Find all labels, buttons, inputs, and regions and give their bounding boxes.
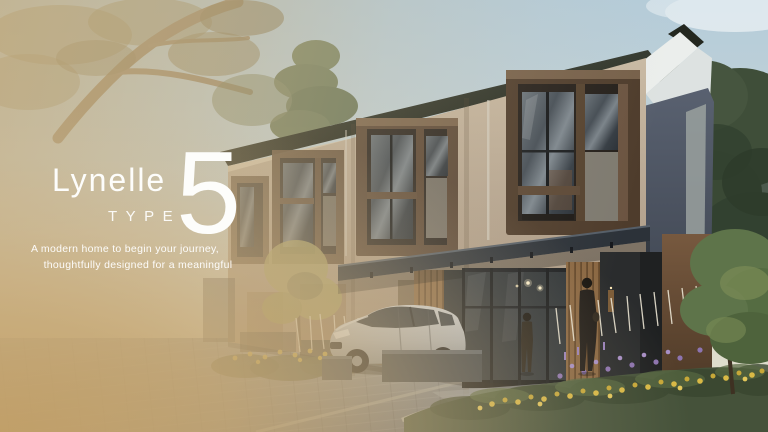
brand-type-number: 5 [176,134,241,251]
window-bay-2 [356,118,458,256]
brand-name: Lynelle [52,164,166,196]
tagline-line-2: thoughtfully designed for a meaningful [0,257,250,273]
tagline-line-1: A modern home to begin your journey, [0,241,250,257]
hero-image: Lynelle 5 TYPE A modern home to begin yo… [0,0,768,432]
window-bay-1 [506,70,640,235]
brand-type-label: TYPE [108,209,181,224]
tagline: A modern home to begin your journey, tho… [0,241,250,273]
